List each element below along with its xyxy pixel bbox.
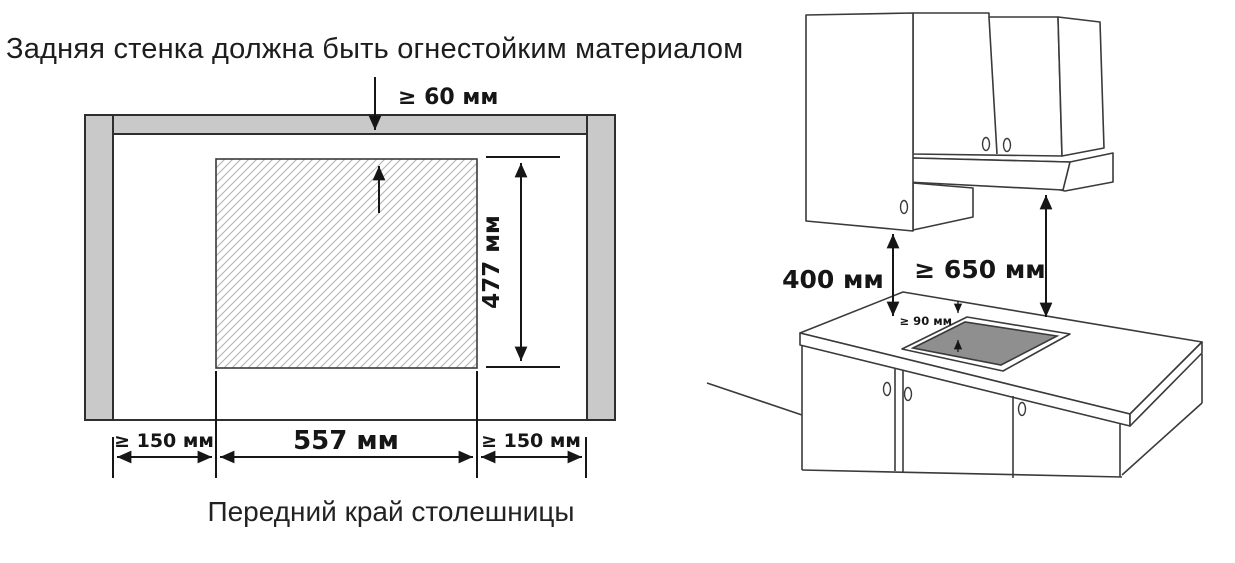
cabinet-lower-side-face [913,183,973,230]
installation-diagram: 400 мм ≥ 650 мм ≥ 90 мм [690,0,1235,563]
right-wall-bar [587,115,615,420]
base-bottom-edge [802,470,1122,477]
cutout-diagram: ≥ 60 мм 477 мм ≥ 150 мм 557 мм ≥ 150 мм … [0,60,660,563]
cutout-hatched-area [216,159,477,368]
rear-clearance-label: ≥ 90 мм [900,314,952,328]
cabinet-deep-section-face [806,13,913,231]
base-handle-1-icon [884,383,891,396]
base-handle-2-icon [905,388,912,401]
base-handle-3-icon [1019,403,1026,416]
cabinet-right-side [1058,17,1104,156]
side-wall-line [707,383,802,415]
hood-to-hob-label: ≥ 650 мм [914,255,1045,284]
back-wall-bar [85,115,615,134]
door-handle-left-icon [983,138,990,151]
right-clearance-label: ≥ 150 мм [481,430,581,452]
cabinet-handle-icon [901,201,908,214]
cabinet-doors-face [913,13,1062,156]
top-clearance-label: ≥ 60 мм [398,85,498,110]
depth-dim-label: 477 мм [479,215,505,309]
left-wall-bar [85,115,113,420]
width-dim-label: 557 мм [293,426,399,456]
front-edge-caption: Передний край столешницы [207,496,574,527]
worktop [800,292,1202,426]
installation-instructions-canvas: Задняя стенка должна быть огнестойким ма… [0,0,1235,563]
left-clearance-label: ≥ 150 мм [114,430,214,452]
cabinet-to-worktop-label: 400 мм [782,265,884,294]
wall-cabinet [806,13,1113,231]
door-handle-right-icon [1004,139,1011,152]
